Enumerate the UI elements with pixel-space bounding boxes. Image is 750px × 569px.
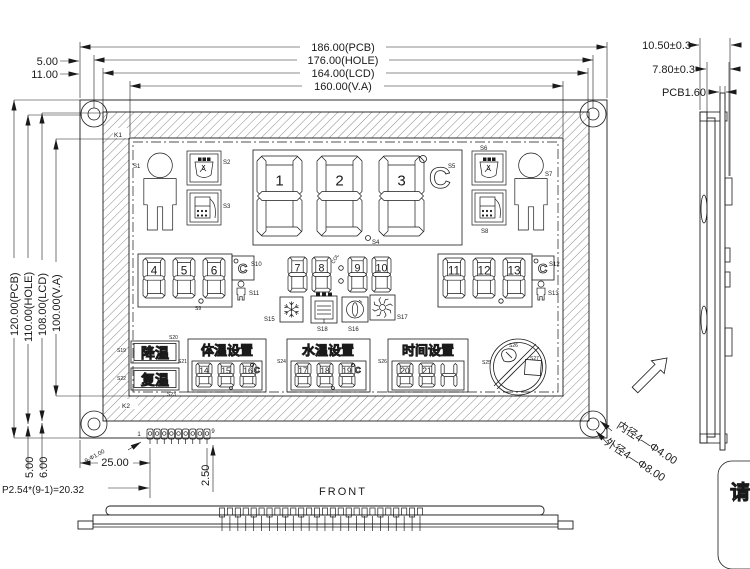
time-title: 时间设置 xyxy=(402,343,454,358)
corner-note-text: 请 xyxy=(730,480,750,504)
mount-hole-notes: 内径4—Φ4.00 外径4—Φ8.00 xyxy=(596,358,680,484)
zone-label-k2: K2 xyxy=(122,403,130,410)
digit-number: 6 xyxy=(211,263,218,277)
digit-number: 5 xyxy=(181,263,188,277)
bottom-view: FRONT xyxy=(78,486,573,531)
dim-pin-pitch: P2.54*(9-1)=20.32 xyxy=(2,485,84,496)
cool-button-text: 降温 xyxy=(141,345,169,361)
dim-hole-height: 110.00(HOLE) xyxy=(23,272,35,342)
dim-pcb-width: 186.00(PCB) xyxy=(311,42,375,54)
celsius-letter-right: C xyxy=(538,261,548,276)
dim-total-thickness: 10.50±0.3 xyxy=(642,40,691,52)
dim-hole-width: 176.00(HOLE) xyxy=(308,55,379,67)
dim-stack-thickness: 7.80±0.3 xyxy=(652,64,695,76)
digit-number: 8 xyxy=(319,263,325,275)
dim-hole-offset: 5.00 xyxy=(37,56,58,68)
s10-label: S10 xyxy=(251,262,262,268)
dim-lcd-bottom-offset: 6.00 xyxy=(38,457,50,478)
s15-label: S15 xyxy=(264,317,275,323)
s16-label: S16 xyxy=(348,327,359,333)
s2-label: S2 xyxy=(223,160,231,166)
digit-number: 10 xyxy=(376,263,388,275)
s18-label: S18 xyxy=(317,327,328,333)
dim-pin-projection: 2.50 xyxy=(200,465,212,486)
digit-number: 2 xyxy=(335,173,343,190)
s23-label: S23 xyxy=(167,392,176,398)
s21-label: S21 xyxy=(178,359,187,365)
s11-label: S11 xyxy=(249,291,260,297)
zone-label-k1: K1 xyxy=(114,132,122,139)
front-view-label: FRONT xyxy=(319,486,367,498)
bottom-pcb-bar xyxy=(93,515,558,524)
dim-pin-span: 25.00 xyxy=(101,457,129,469)
digit-number: 13 xyxy=(507,263,521,277)
s3-label: S3 xyxy=(223,204,231,210)
dim-lcd-offset: 11.00 xyxy=(31,69,58,81)
digit-number: 7 xyxy=(295,263,301,275)
digit-number: 1 xyxy=(275,173,283,190)
s12-label: S12 xyxy=(549,262,560,268)
s22-label: S22 xyxy=(117,376,126,382)
water-temp-title: 水温设置 xyxy=(302,343,354,358)
digit-number: 18 xyxy=(320,366,330,375)
dim-pcb-height: 120.00(PCB) xyxy=(9,272,21,336)
digit-number: 3 xyxy=(397,173,405,190)
digit-number: 11 xyxy=(448,263,460,277)
orientation-arrow-icon xyxy=(632,358,667,393)
dim-lcd-height: 108.00(LCD) xyxy=(37,273,49,336)
cad-sheet: K1 K2 S1 S2 S3 S6 S7 S8 123 S4 C S5 456 … xyxy=(0,0,750,569)
s20-label: S20 xyxy=(169,335,178,341)
s13-label: S13 xyxy=(548,291,559,297)
rewarm-button-text: 复温 xyxy=(140,372,169,388)
body-temp-title: 体温设置 xyxy=(201,343,253,358)
s4-label: S4 xyxy=(372,240,380,246)
digit-number: 14 xyxy=(199,366,209,375)
digit-number: 17 xyxy=(298,366,308,375)
digit-number: 9 xyxy=(355,263,361,275)
s8-label: S8 xyxy=(481,229,489,235)
s24-label: S24 xyxy=(277,359,286,365)
s5-label: S5 xyxy=(448,164,456,170)
side-bezel xyxy=(700,112,707,443)
celsius-letter-water: C xyxy=(355,366,361,375)
digit-number: 12 xyxy=(477,263,490,277)
celsius-letter-left: C xyxy=(238,261,248,276)
corner-note-box: 请 xyxy=(718,461,750,569)
dim-hole-bottom-offset: 5.00 xyxy=(24,457,36,478)
side-pcb xyxy=(720,93,725,450)
bottom-lcd-bar xyxy=(106,506,544,515)
digit-number: 19 xyxy=(342,366,352,375)
digit-number: 20 xyxy=(400,366,410,375)
side-lcd-glass xyxy=(707,118,715,437)
lcd-module-engineering-drawing: K1 K2 S1 S2 S3 S6 S7 S8 123 S4 C S5 456 … xyxy=(0,0,750,569)
dim-va-width: 160.00(V.A) xyxy=(314,81,372,93)
digit-number: 15 xyxy=(221,366,231,375)
s9-label: S9 xyxy=(195,306,201,312)
s26-prohibit-label: S26 xyxy=(509,343,518,349)
s7-label: S7 xyxy=(545,172,553,178)
celsius-letter-body: C xyxy=(254,366,260,375)
dim-pcb-thickness: PCB1.60 xyxy=(662,87,706,99)
s1-label: S1 xyxy=(133,164,141,170)
s26-time-label: S26 xyxy=(378,359,387,365)
s17-label: S17 xyxy=(397,315,408,321)
digit-number: 21 xyxy=(422,366,432,375)
digit-number: 4 xyxy=(151,263,158,277)
side-view xyxy=(700,93,732,450)
s25-label: S25 xyxy=(482,360,491,366)
dim-lcd-width: 164.00(LCD) xyxy=(312,68,375,80)
s19-label: S19 xyxy=(117,348,126,354)
s27-label: S27 xyxy=(530,356,539,362)
digit-number: 16 xyxy=(243,366,253,375)
dim-va-height: 100.00(V.A) xyxy=(51,274,63,332)
